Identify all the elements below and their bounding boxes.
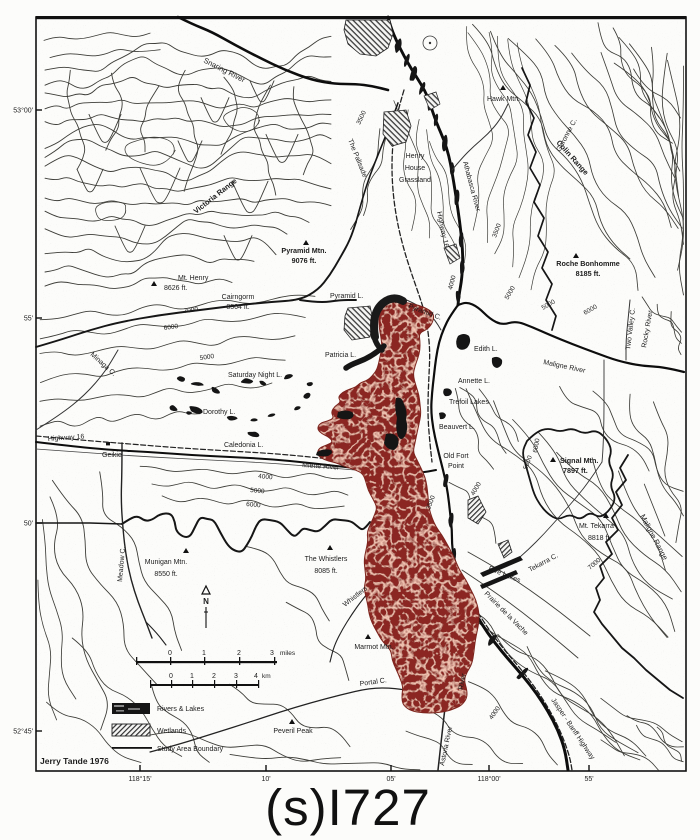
svg-text:Dorothy L.: Dorothy L. [203,409,235,416]
svg-text:Cairngorm: Cairngorm [222,294,255,301]
svg-text:50': 50' [24,521,33,528]
svg-text:9076 ft.: 9076 ft. [292,256,317,265]
svg-text:8185 ft.: 8185 ft. [576,269,601,278]
svg-text:0: 0 [169,673,173,680]
svg-text:Peveril Peak: Peveril Peak [273,728,313,735]
svg-text:Henry: Henry [406,153,425,160]
svg-text:55': 55' [584,776,593,783]
svg-text:Pyramid Mtn.: Pyramid Mtn. [281,246,326,255]
svg-text:N: N [203,597,209,606]
svg-text:Rivers & Lakes: Rivers & Lakes [157,706,205,713]
svg-text:Edith L.: Edith L. [474,346,498,353]
svg-text:118°15': 118°15' [128,775,151,783]
svg-text:Annette L.: Annette L. [458,378,490,385]
svg-text:Geikie: Geikie [102,452,122,459]
svg-text:8085 ft.: 8085 ft. [314,568,337,575]
svg-text:6000: 6000 [246,501,261,509]
svg-text:House: House [405,165,425,172]
svg-text:Jerry Tande 1976: Jerry Tande 1976 [40,756,109,766]
svg-text:Point: Point [448,463,464,470]
svg-text:5000: 5000 [250,487,265,495]
svg-text:4: 4 [254,673,258,680]
svg-text:Signal Mtn.: Signal Mtn. [560,456,598,465]
svg-text:Patricia L.: Patricia L. [325,352,356,359]
svg-text:8564 ft.: 8564 ft. [226,304,249,311]
svg-text:Hawk Mtn.: Hawk Mtn. [487,96,520,103]
svg-text:Roche Bonhomme: Roche Bonhomme [556,259,620,268]
svg-text:Grassland: Grassland [399,177,431,184]
svg-text:km: km [262,673,271,680]
svg-text:8626 ft.: 8626 ft. [164,285,187,292]
svg-text:Trefoil Lakes: Trefoil Lakes [449,399,489,406]
svg-text:Marmot Mtn.: Marmot Mtn. [354,644,393,651]
svg-text:Pyramid L.: Pyramid L. [330,293,364,300]
svg-text:3: 3 [234,673,238,680]
svg-text:(s)I727: (s)I727 [265,779,431,836]
svg-text:3: 3 [270,650,274,657]
svg-text:Beauvert L.: Beauvert L. [439,424,475,431]
svg-text:Mt. Tekarra: Mt. Tekarra [579,523,614,530]
svg-text:52°45': 52°45' [13,728,33,736]
svg-text:1: 1 [202,650,206,657]
svg-text:1: 1 [190,673,194,680]
svg-text:Caledonia L.: Caledonia L. [224,442,263,449]
svg-text:Saturday Night L.: Saturday Night L. [228,372,282,379]
svg-text:118°00': 118°00' [477,775,500,783]
svg-text:Wetlands: Wetlands [157,728,187,735]
svg-text:4000: 4000 [258,473,273,481]
svg-text:8818 ft.: 8818 ft. [588,535,611,542]
svg-text:55': 55' [24,316,33,323]
svg-text:Old Fort: Old Fort [443,453,468,460]
svg-text:2: 2 [237,650,241,657]
svg-text:8550 ft.: 8550 ft. [154,571,177,578]
svg-text:2: 2 [212,673,216,680]
svg-text:53°00': 53°00' [13,107,33,115]
svg-text:7897 ft.: 7897 ft. [563,466,588,475]
svg-text:Munigan Mtn.: Munigan Mtn. [145,559,187,566]
svg-text:miles: miles [280,650,296,657]
svg-text:Study Area Boundary: Study Area Boundary [157,746,224,753]
svg-text:Mt. Henry: Mt. Henry [178,275,209,282]
svg-text:The Whistlers: The Whistlers [305,556,348,563]
svg-text:0: 0 [168,650,172,657]
